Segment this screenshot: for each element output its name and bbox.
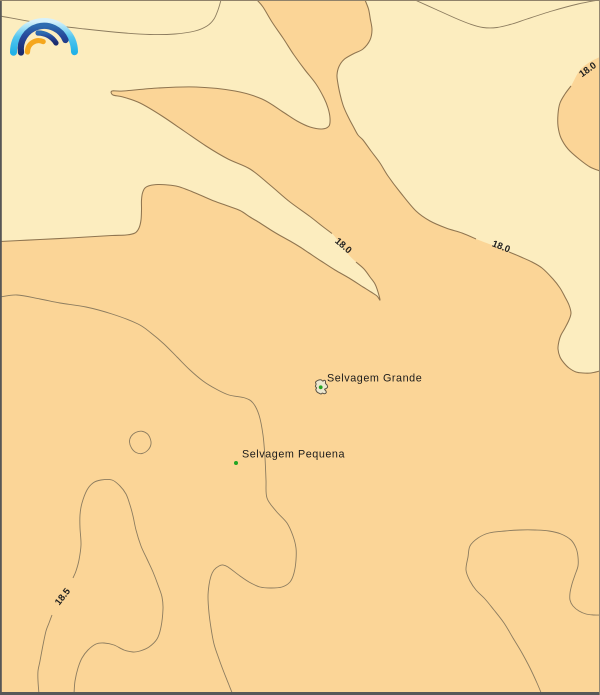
svg-text:Selvagem Grande: Selvagem Grande bbox=[327, 373, 422, 385]
svg-text:Selvagem Pequena: Selvagem Pequena bbox=[242, 449, 345, 461]
